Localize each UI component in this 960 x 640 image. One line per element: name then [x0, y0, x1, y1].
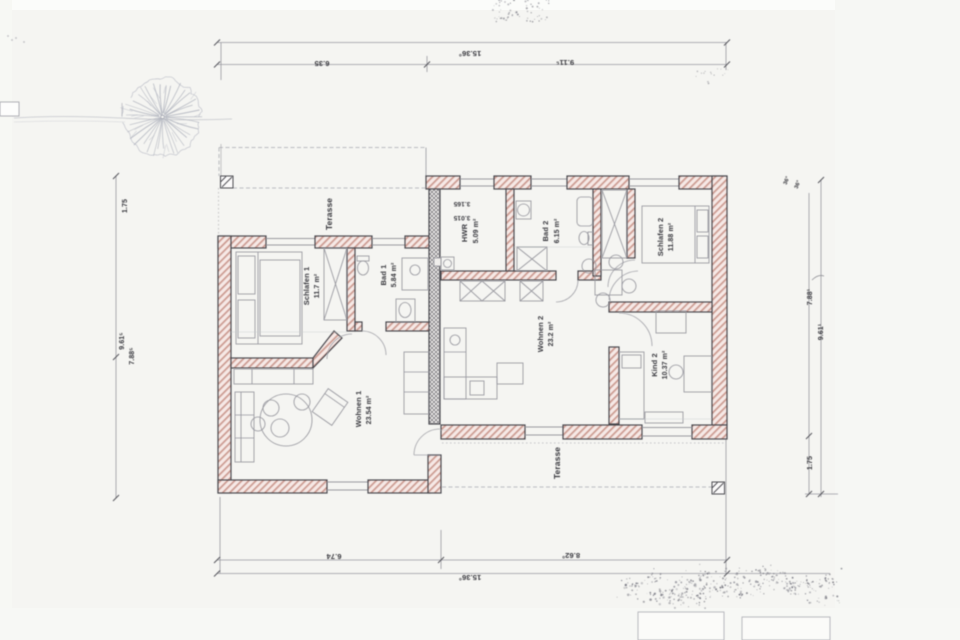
svg-text:9.61⁵: 9.61⁵ [119, 332, 126, 349]
svg-text:Schlafen 1: Schlafen 1 [302, 267, 311, 306]
svg-text:Terasse: Terasse [552, 447, 562, 479]
svg-text:3.165: 3.165 [453, 200, 470, 207]
svg-text:Wohnen 1: Wohnen 1 [354, 391, 363, 428]
svg-text:3.015: 3.015 [453, 214, 470, 221]
svg-text:HWR: HWR [460, 223, 469, 242]
svg-text:11.7 m²: 11.7 m² [314, 273, 321, 298]
svg-text:11.88 m²: 11.88 m² [668, 222, 675, 251]
svg-text:1.75: 1.75 [122, 199, 129, 213]
svg-text:5.09 m²: 5.09 m² [473, 218, 480, 243]
svg-text:9.11⁵: 9.11⁵ [556, 58, 575, 67]
svg-text:5.84 m²: 5.84 m² [391, 262, 398, 287]
svg-text:Bad 1: Bad 1 [379, 265, 388, 286]
svg-text:Bad 2: Bad 2 [541, 221, 550, 242]
svg-text:Wohnen 2: Wohnen 2 [536, 316, 545, 353]
svg-text:23.54 m²: 23.54 m² [366, 395, 373, 424]
svg-text:6.15 m²: 6.15 m² [554, 218, 561, 243]
svg-text:15.36°: 15.36° [459, 49, 481, 58]
svg-text:8.62°: 8.62° [562, 551, 580, 560]
svg-text:15.36°: 15.36° [459, 573, 481, 582]
svg-text:7.88¹: 7.88¹ [807, 288, 814, 305]
svg-text:6.74: 6.74 [326, 552, 342, 561]
svg-text:Terasse: Terasse [324, 198, 334, 230]
svg-text:10.37 m²: 10.37 m² [662, 350, 669, 379]
svg-text:6.35: 6.35 [315, 59, 330, 68]
svg-text:23.2 m²: 23.2 m² [548, 321, 555, 346]
svg-text:7.88⁵: 7.88⁵ [129, 347, 136, 364]
svg-text:9.61¹: 9.61¹ [818, 323, 825, 340]
svg-text:Kind 2: Kind 2 [650, 353, 659, 377]
svg-text:1.75: 1.75 [807, 456, 814, 470]
svg-text:Schlafen 2: Schlafen 2 [656, 218, 665, 257]
